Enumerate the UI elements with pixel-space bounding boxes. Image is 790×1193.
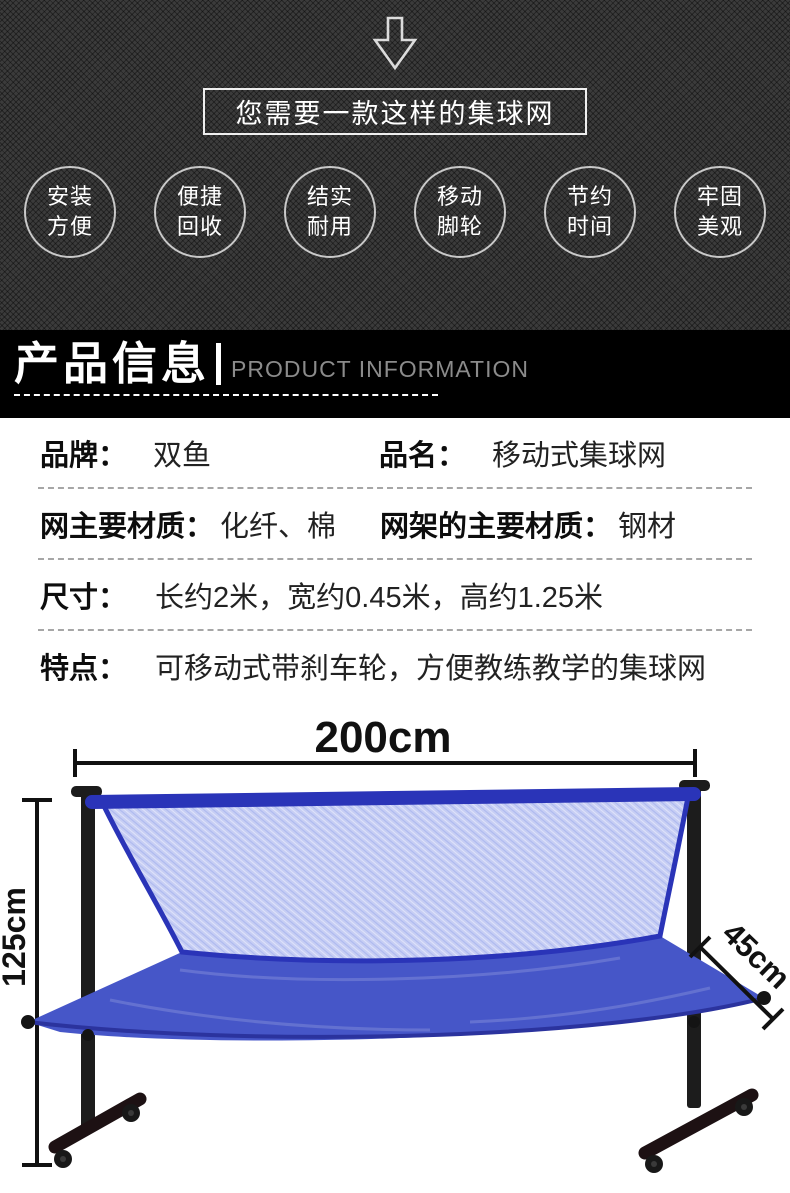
feature-label: 特点： xyxy=(40,645,127,687)
net-material-value: 化纤、棉 xyxy=(220,503,336,545)
product-name-value: 移动式集球网 xyxy=(492,432,666,474)
feature-badge-install: 安装 方便 xyxy=(24,166,116,258)
feature-text: 方便 xyxy=(47,212,93,242)
net-material-label: 网主要材质： xyxy=(40,503,214,545)
brand-label: 品牌： xyxy=(40,432,127,474)
section-title-cn: 产品信息 xyxy=(14,340,210,387)
feature-text: 结实 xyxy=(307,182,353,212)
feature-text: 耐用 xyxy=(307,212,353,242)
width-dimension-label: 200cm xyxy=(314,713,451,762)
frame-material-value: 钢材 xyxy=(618,503,676,545)
product-info-banner: 产品信息 PRODUCT INFORMATION xyxy=(0,330,790,418)
hero-section: 您需要一款这样的集球网 安装 方便 便捷 回收 结实 耐用 移动 脚轮 节约 时… xyxy=(0,0,790,330)
feature-text: 牢固 xyxy=(697,182,743,212)
section-title-en: PRODUCT INFORMATION xyxy=(231,356,529,387)
frame-material-label: 网架的主要材质： xyxy=(380,503,612,545)
net-top-bar xyxy=(92,794,694,802)
net-mesh xyxy=(104,797,688,961)
feature-badge-durable: 结实 耐用 xyxy=(284,166,376,258)
down-arrow-icon xyxy=(0,0,790,72)
feature-text: 安装 xyxy=(47,182,93,212)
brand-value: 双鱼 xyxy=(153,432,211,474)
title-divider xyxy=(216,343,221,385)
feature-text: 移动 xyxy=(437,182,483,212)
feature-text: 便捷 xyxy=(177,182,223,212)
spec-row-material: 网主要材质： 化纤、棉 网架的主要材质： 钢材 xyxy=(0,489,790,558)
callout-box: 您需要一款这样的集球网 xyxy=(203,88,587,135)
feature-badges: 安装 方便 便捷 回收 结实 耐用 移动 脚轮 节约 时间 牢固 美观 xyxy=(0,166,790,258)
feature-text: 脚轮 xyxy=(437,212,483,242)
callout-text: 您需要一款这样的集球网 xyxy=(236,92,555,131)
size-value: 长约2米，宽约0.45米，高约1.25米 xyxy=(155,574,603,616)
product-name-label: 品名： xyxy=(379,432,466,474)
product-photo: 200cm 125cm xyxy=(0,700,790,1188)
feature-value: 可移动式带刹车轮，方便教练教学的集球网 xyxy=(155,645,706,687)
spec-row-feature: 特点： 可移动式带刹车轮，方便教练教学的集球网 xyxy=(0,631,790,700)
feature-text: 回收 xyxy=(177,212,223,242)
dashed-underline xyxy=(14,394,438,396)
feature-text: 美观 xyxy=(697,212,743,242)
spec-row-size: 尺寸： 长约2米，宽约0.45米，高约1.25米 xyxy=(0,560,790,629)
product-diagram: 200cm 125cm xyxy=(0,700,790,1188)
caster-wheels xyxy=(54,1098,753,1173)
feature-badge-time-saving: 节约 时间 xyxy=(544,166,636,258)
feature-badge-casters: 移动 脚轮 xyxy=(414,166,506,258)
height-dimension-label: 125cm xyxy=(0,887,32,987)
feature-text: 时间 xyxy=(567,212,613,242)
size-label: 尺寸： xyxy=(40,574,127,616)
leg-assemblies xyxy=(54,1095,753,1173)
feature-text: 节约 xyxy=(567,182,613,212)
spec-table: 品牌： 双鱼 品名： 移动式集球网 网主要材质： 化纤、棉 网架的主要材质： 钢… xyxy=(0,418,790,700)
feature-badge-sturdy: 牢固 美观 xyxy=(674,166,766,258)
spec-row-brand: 品牌： 双鱼 品名： 移动式集球网 xyxy=(0,418,790,487)
feature-badge-recycle: 便捷 回收 xyxy=(154,166,246,258)
